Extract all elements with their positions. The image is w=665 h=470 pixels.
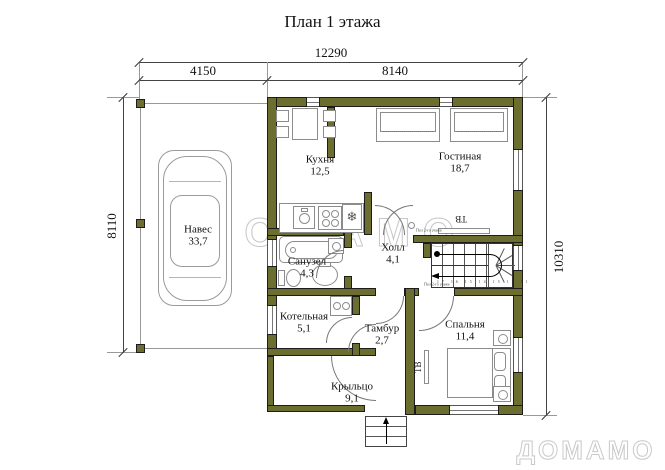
wall-porch-bottom: [267, 405, 365, 412]
wall-right: [513, 97, 523, 150]
wall-bottom-bedroom: [498, 405, 523, 415]
sink-faucet: [301, 208, 308, 212]
room-label-hall: Холл 4,1: [381, 242, 405, 267]
nightstand-lamp: [498, 334, 508, 344]
toilet-tank: [278, 270, 285, 286]
dim-label-left: 8110: [104, 196, 120, 256]
wall-mid: [267, 288, 376, 296]
sofa-seat: [454, 112, 504, 132]
room-area: 4,3: [288, 268, 326, 280]
fridge: ❄: [342, 204, 362, 230]
room-area: 18,7: [439, 163, 482, 175]
room-name: Крыльцо: [331, 381, 373, 393]
room-name: Санузел: [288, 256, 326, 268]
burner: [322, 210, 330, 218]
stair-path-lower: [438, 276, 490, 277]
tv-living: [438, 228, 490, 234]
sofa-cushion-dots: [383, 131, 433, 132]
dim-label-canopy: 4150: [139, 63, 267, 79]
kitchen-sink: [293, 206, 315, 229]
entry-arrow-head: [383, 417, 389, 424]
room-label-living: Гостиная 18,7: [439, 151, 482, 176]
nightstand: [493, 386, 511, 402]
canopy-outline-bottom: [140, 348, 268, 349]
wall-boiler-right: [352, 296, 360, 315]
sofa-seat: [380, 112, 436, 132]
car-trunk-line: [169, 277, 221, 278]
room-name: Спальня: [445, 319, 485, 331]
wall-top: [319, 97, 440, 107]
door-arc-vestibule-hall: [376, 296, 404, 324]
floor-plan-sheet: План 1 этажа 12290 4150 8140 8110 10310 …: [0, 0, 665, 470]
stair-path-upper: [438, 254, 490, 255]
stair-path-start-dot: [434, 251, 440, 257]
tv-living-label: ТВ: [448, 214, 474, 224]
bathtub-drain: [290, 247, 296, 253]
wall-living-stairs: [413, 235, 523, 243]
sofa-cushion-dots: [457, 131, 501, 132]
dim-line-left: [123, 97, 124, 352]
domamo-logo: ДОМАМО: [512, 435, 660, 466]
stair-note: Пол 2-го этажа: [424, 282, 450, 287]
sofa: [450, 108, 508, 142]
stair-run-divider: [432, 265, 489, 266]
room-label-kitchen: Кухня 12,5: [306, 154, 334, 179]
door-arc-boiler: [326, 317, 352, 343]
room-name: Котельная: [280, 311, 328, 323]
burner: [322, 219, 330, 227]
burner: [331, 219, 339, 227]
room-label-canopy: Навес 33,7: [184, 224, 212, 249]
door-note: Пол 2-го этажа: [416, 228, 442, 233]
room-area: 33,7: [184, 236, 212, 248]
room-name: Холл: [381, 242, 405, 254]
canopy-outline-top: [140, 103, 268, 104]
pillow: [494, 352, 506, 371]
dining-table: [292, 108, 318, 140]
chair: [276, 126, 289, 138]
room-area: 12,5: [306, 166, 334, 178]
room-name: Гостиная: [439, 151, 482, 163]
tv-bedroom-label: ТВ: [413, 359, 425, 373]
wall-left: [267, 266, 277, 306]
wall-bottom-bedroom: [415, 405, 450, 415]
window-kitchen: [307, 97, 319, 107]
ext-line: [523, 415, 557, 416]
room-name: Навес: [184, 224, 212, 236]
window-bedroom-right: [513, 338, 523, 372]
wall-kitchen-hall: [364, 192, 372, 235]
nightstand-lamp: [498, 390, 508, 400]
room-area: 9,1: [331, 393, 373, 405]
stair-tread-numbers: 17 16 15 14 13 12 11: [437, 280, 530, 284]
room-label-porch: Крыльцо 9,1: [331, 381, 373, 406]
window-living-top: [440, 97, 452, 107]
wall-bedroom-left: [405, 288, 415, 415]
entry-arrow-stem: [386, 421, 387, 444]
ext-line: [523, 97, 557, 98]
room-label-bathroom: Санузел 4,3: [288, 256, 326, 281]
room-name: Кухня: [306, 154, 334, 166]
boiler-burner: [342, 302, 350, 310]
window-living-right: [513, 150, 523, 190]
dim-label-total: 12290: [139, 45, 523, 61]
burner: [331, 210, 339, 218]
car-hood-line: [169, 181, 221, 182]
boiler: [330, 296, 352, 316]
dim-label-house: 8140: [267, 63, 523, 79]
dim-line-right: [546, 97, 547, 415]
fridge-snowflake-icon: ❄: [347, 209, 358, 224]
wall-porch-left: [267, 356, 274, 412]
boiler-burner: [333, 302, 341, 310]
window-stairs: [513, 246, 523, 270]
dim-line-split: [139, 80, 523, 81]
sofa: [376, 108, 440, 142]
chair: [323, 110, 336, 122]
chair: [323, 126, 336, 138]
canopy-post: [136, 344, 145, 353]
window-bathroom: [267, 240, 277, 266]
room-area: 2,7: [365, 335, 399, 347]
wall-hall-stairs: [423, 243, 431, 258]
window-boiler: [267, 306, 277, 334]
room-label-boiler: Котельная 5,1: [280, 311, 328, 336]
sink-bowl: [299, 213, 310, 224]
room-area: 11,4: [445, 331, 485, 343]
canopy-post: [136, 99, 145, 108]
page-title: План 1 этажа: [0, 12, 665, 32]
room-label-bedroom: Спальня 11,4: [445, 319, 485, 344]
stove: [318, 206, 342, 230]
dim-label-right: 10310: [551, 222, 567, 292]
room-area: 5,1: [280, 323, 328, 335]
wall-mid: [454, 288, 523, 296]
stair-path-turn: [490, 254, 502, 277]
room-name: Тамбур: [365, 323, 399, 335]
nightstand: [493, 330, 511, 346]
chair: [276, 110, 289, 122]
stair-direction-arrow: [431, 273, 439, 279]
room-label-vestibule: Тамбур 2,7: [365, 323, 399, 348]
room-area: 4,1: [381, 254, 405, 266]
window-bedroom-bottom: [450, 405, 498, 415]
canopy-post: [136, 219, 145, 228]
